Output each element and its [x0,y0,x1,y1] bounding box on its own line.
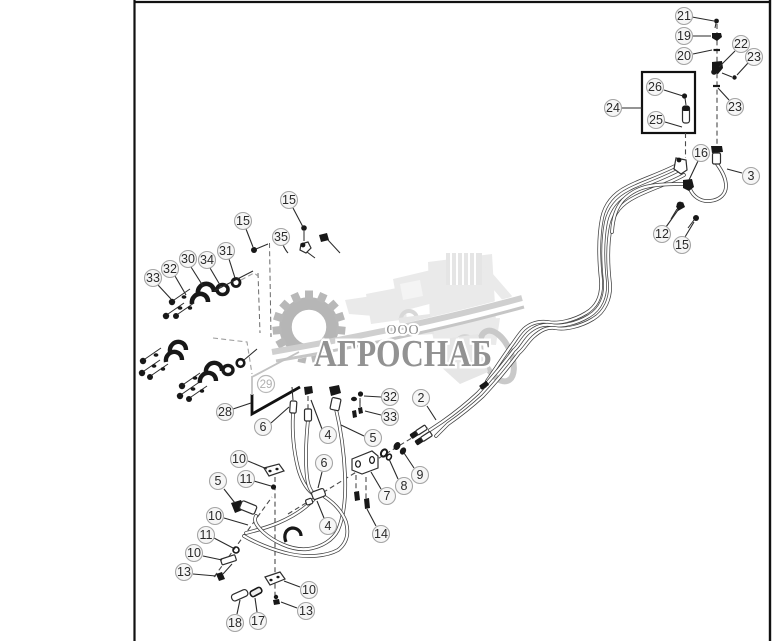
svg-text:23: 23 [728,100,742,114]
svg-text:28: 28 [218,405,232,419]
svg-text:10: 10 [208,509,222,523]
svg-text:13: 13 [299,604,313,618]
svg-text:16: 16 [694,146,708,160]
svg-text:33: 33 [383,410,397,424]
svg-text:5: 5 [215,474,222,488]
svg-text:25: 25 [649,113,663,127]
svg-text:14: 14 [374,527,388,541]
svg-text:3: 3 [748,169,755,183]
svg-text:11: 11 [240,472,253,486]
svg-text:21: 21 [677,9,691,23]
svg-text:30: 30 [181,252,195,266]
svg-text:2: 2 [418,391,425,405]
svg-text:АГРОСНАБ: АГРОСНАБ [314,333,492,375]
svg-text:9: 9 [417,468,424,482]
svg-text:15: 15 [675,238,689,252]
svg-text:17: 17 [251,614,265,628]
svg-text:32: 32 [383,390,397,404]
svg-text:4: 4 [325,428,332,442]
svg-text:7: 7 [384,489,391,503]
svg-text:12: 12 [655,227,669,241]
svg-text:26: 26 [648,80,662,94]
svg-text:15: 15 [236,214,250,228]
svg-text:35: 35 [274,230,288,244]
svg-text:33: 33 [146,271,160,285]
svg-text:11: 11 [200,528,213,542]
svg-text:10: 10 [187,546,201,560]
svg-text:32: 32 [163,262,177,276]
svg-text:22: 22 [734,37,748,51]
svg-text:5: 5 [370,431,377,445]
svg-text:18: 18 [228,616,242,630]
svg-text:6: 6 [321,456,328,470]
svg-text:29: 29 [260,379,273,391]
svg-text:6: 6 [260,420,267,434]
svg-text:10: 10 [232,452,246,466]
svg-text:19: 19 [677,29,691,43]
svg-text:31: 31 [219,244,233,258]
svg-text:24: 24 [606,101,620,115]
svg-text:15: 15 [282,193,296,207]
svg-text:20: 20 [677,49,691,63]
svg-text:23: 23 [747,50,761,64]
svg-text:34: 34 [200,253,214,267]
svg-text:8: 8 [401,479,408,493]
svg-text:4: 4 [325,519,332,533]
svg-text:13: 13 [177,565,191,579]
svg-text:10: 10 [302,583,316,597]
